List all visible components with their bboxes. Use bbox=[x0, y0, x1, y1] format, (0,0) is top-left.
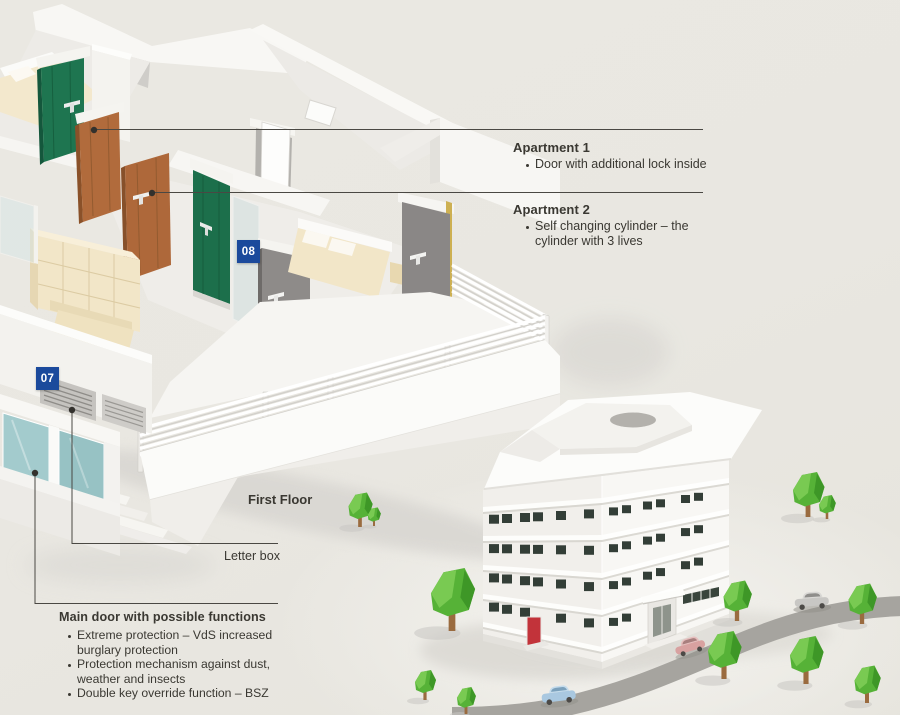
apartment-2-title: Apartment 2 bbox=[513, 202, 703, 217]
annotation-apartment-2: Apartment 2 Self changing cylinder – the… bbox=[513, 202, 703, 249]
apartment-1-bullet: Door with additional lock inside bbox=[524, 157, 707, 172]
apartment-1-title: Apartment 1 bbox=[513, 140, 707, 155]
annotation-apartment-1: Apartment 1 Door with additional lock in… bbox=[513, 140, 707, 172]
brown-door-apartment-1 bbox=[75, 102, 124, 224]
annotation-main-door: Main door with possible functions Extrem… bbox=[59, 610, 295, 701]
roof-opening bbox=[610, 413, 656, 428]
main-door-bullet-3: Double key override function – BSZ bbox=[66, 686, 295, 701]
badge-07: 07 bbox=[36, 367, 59, 390]
first-floor-label: First Floor bbox=[248, 492, 312, 507]
green-door-2 bbox=[190, 158, 233, 310]
main-door-bullet-2: Protection mechanism against dust, weath… bbox=[66, 657, 295, 686]
glass-partition bbox=[0, 196, 34, 263]
bathroom-floor bbox=[263, 40, 455, 170]
main-door-title: Main door with possible functions bbox=[59, 610, 295, 625]
letter-box-label: Letter box bbox=[180, 549, 280, 563]
apartment-2-bullet: Self changing cylinder – the cylinder wi… bbox=[524, 219, 703, 249]
main-door-bullet-1: Extreme protection – VdS increased burgl… bbox=[66, 628, 295, 657]
badge-08: 08 bbox=[237, 240, 260, 263]
brochure-page: 07 08 Apartment 1 Door with additional l… bbox=[0, 0, 900, 715]
illustration-canvas bbox=[0, 0, 900, 715]
